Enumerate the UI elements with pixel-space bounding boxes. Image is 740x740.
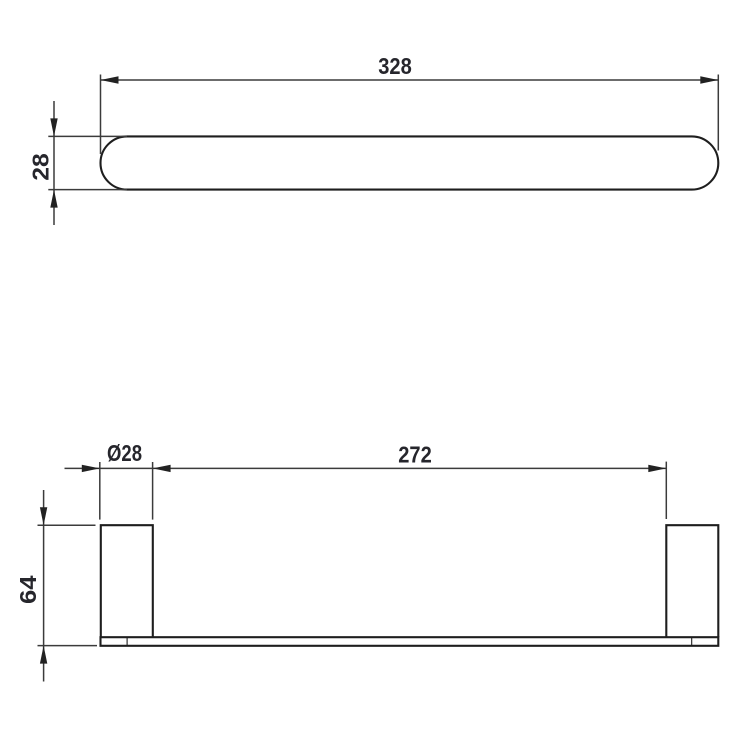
svg-text:Ø28: Ø28 [107,440,142,466]
svg-text:272: 272 [398,442,432,468]
svg-text:328: 328 [378,53,412,79]
svg-text:64: 64 [15,575,41,604]
svg-text:28: 28 [27,153,53,181]
